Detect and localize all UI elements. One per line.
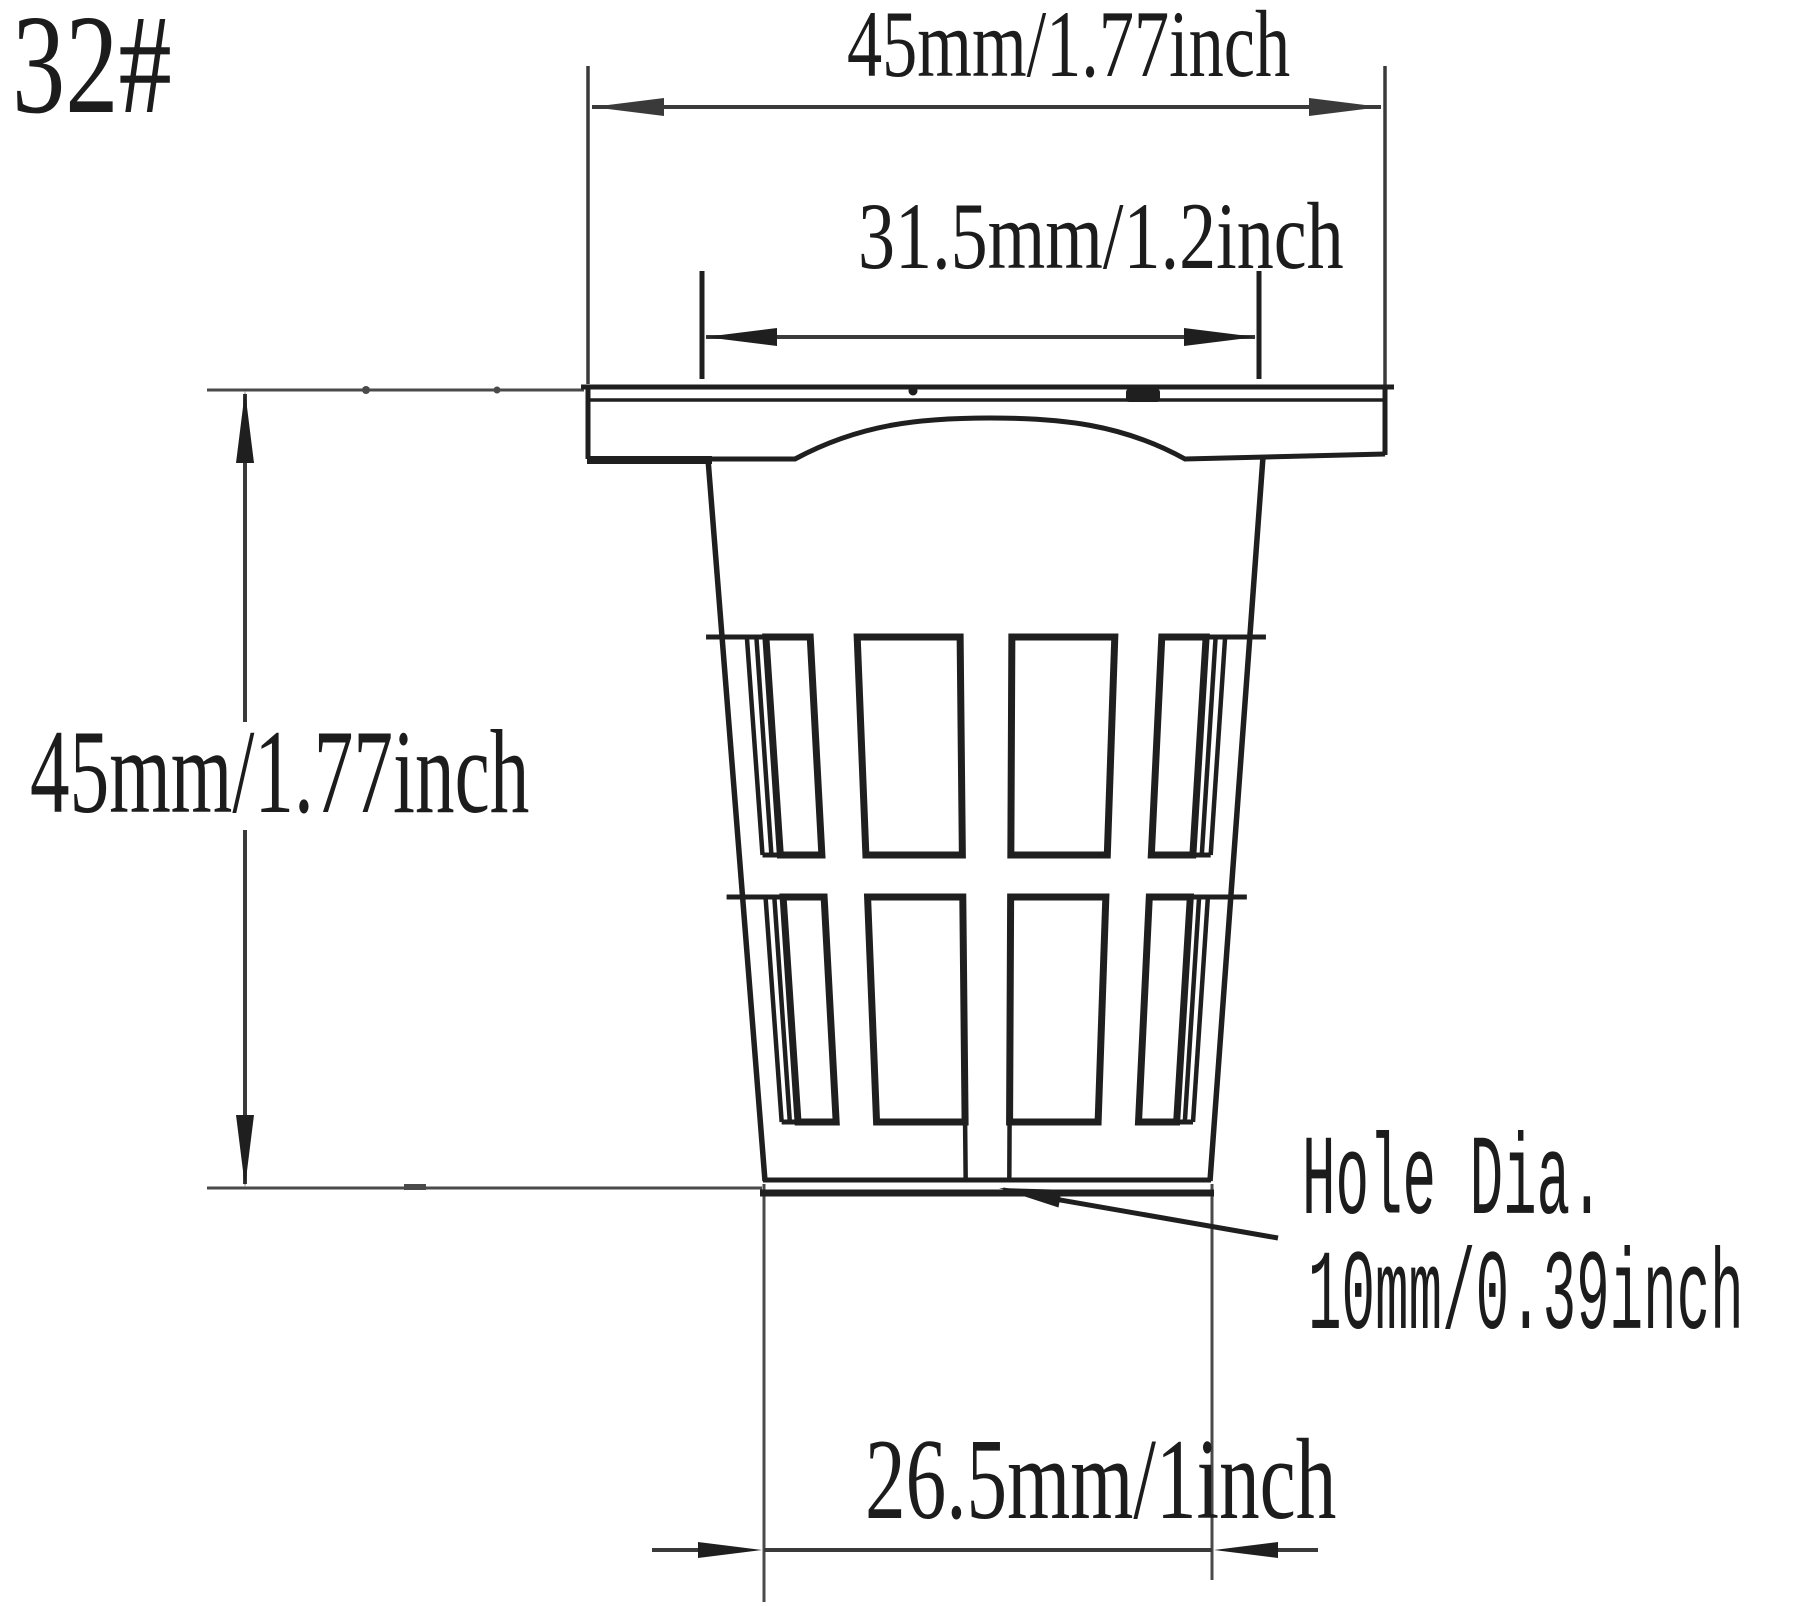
hole-diameter-label-line1: Hole Dia. — [1302, 1118, 1604, 1248]
net-cup-outline — [581, 387, 1394, 1193]
height-dimension-text: 45mm/1.77inch — [30, 705, 529, 838]
top-width-dimension-text: 45mm/1.77inch — [847, 0, 1290, 98]
net-pot-technical-drawing: 32# 45mm/1.77inch 31.5mm/1.2inch 45mm/1.… — [0, 0, 1800, 1607]
inner-width-dimension-text: 31.5mm/1.2inch — [858, 184, 1344, 289]
bottom-width-dimension-text: 26.5mm/1inch — [865, 1415, 1336, 1544]
drawing-canvas: 32# 45mm/1.77inch 31.5mm/1.2inch 45mm/1.… — [0, 0, 1800, 1607]
hole-diameter-label-line2: 10mm/0.39inch — [1308, 1233, 1744, 1363]
part-number-label: 32# — [12, 0, 172, 144]
mesh-slot-grid — [706, 637, 1266, 1181]
